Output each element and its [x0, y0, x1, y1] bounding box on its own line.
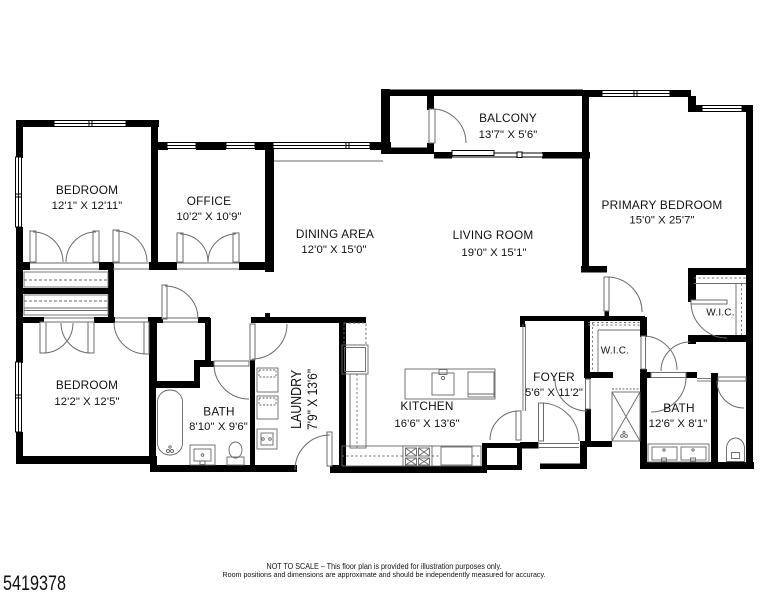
- svg-text:12'2" X 12'5": 12'2" X 12'5": [54, 396, 119, 408]
- svg-text:8'10" X 9'6": 8'10" X 9'6": [189, 421, 248, 433]
- svg-text:15'0" X 25'7": 15'0" X 25'7": [629, 215, 694, 227]
- svg-text:5419378: 5419378: [3, 572, 66, 594]
- svg-text:LIVING ROOM: LIVING ROOM: [453, 228, 534, 242]
- svg-text:OFFICE: OFFICE: [187, 194, 231, 208]
- svg-text:12'1" X 12'11": 12'1" X 12'11": [52, 200, 123, 212]
- svg-text:10'2" X 10'9": 10'2" X 10'9": [176, 211, 241, 223]
- svg-text:7'9" X 13'6": 7'9" X 13'6": [305, 369, 320, 430]
- svg-text:PRIMARY BEDROOM: PRIMARY BEDROOM: [602, 198, 723, 212]
- svg-text:BALCONY: BALCONY: [479, 111, 537, 125]
- svg-text:BATH: BATH: [203, 405, 234, 419]
- svg-text:BEDROOM: BEDROOM: [56, 183, 118, 197]
- svg-text:KITCHEN: KITCHEN: [400, 399, 453, 413]
- svg-text:W.I.C.: W.I.C.: [601, 346, 629, 357]
- svg-text:W.I.C.: W.I.C.: [706, 308, 734, 319]
- svg-text:LAUNDRY: LAUNDRY: [289, 370, 305, 429]
- svg-text:12'6" X 8'1": 12'6" X 8'1": [649, 418, 708, 430]
- svg-text:12'0" X 15'0": 12'0" X 15'0": [301, 244, 366, 256]
- svg-text:BEDROOM: BEDROOM: [56, 378, 118, 392]
- svg-text:5'6" X 11'2": 5'6" X 11'2": [525, 387, 583, 399]
- svg-text:FOYER: FOYER: [533, 370, 575, 384]
- svg-text:13'7" X 5'6": 13'7" X 5'6": [479, 129, 538, 141]
- svg-text:16'6" X 13'6": 16'6" X 13'6": [394, 418, 459, 430]
- svg-text:DINING AREA: DINING AREA: [296, 227, 374, 241]
- svg-text:BATH: BATH: [663, 401, 694, 415]
- svg-text:19'0" X 15'1": 19'0" X 15'1": [461, 247, 526, 259]
- svg-text:Room positions and dimensions: Room positions and dimensions are approx…: [223, 570, 546, 579]
